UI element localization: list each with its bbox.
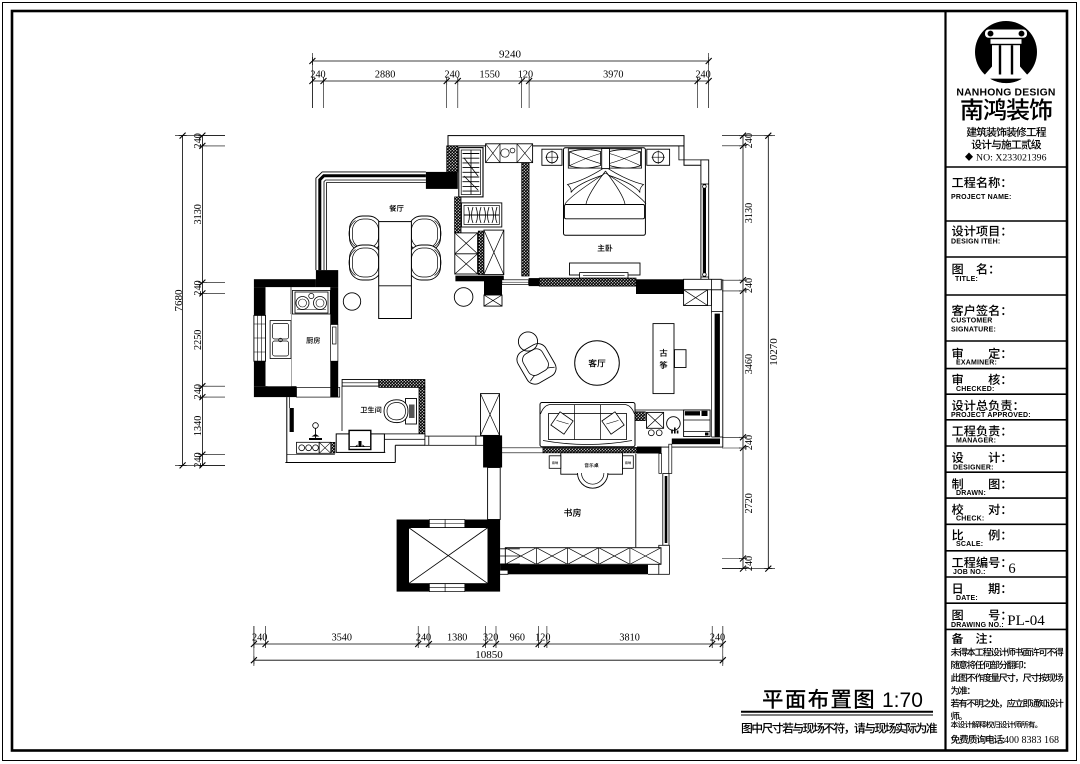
svg-text:240: 240 bbox=[744, 556, 755, 571]
svg-text:DESIGNER:: DESIGNER: bbox=[953, 465, 994, 472]
svg-text:NANHONG DESIGN: NANHONG DESIGN bbox=[956, 88, 1055, 99]
svg-text:SCALE:: SCALE: bbox=[956, 541, 983, 548]
svg-text:120: 120 bbox=[518, 70, 533, 81]
svg-text:240: 240 bbox=[695, 70, 710, 81]
svg-text:CHECK:: CHECK: bbox=[956, 516, 984, 523]
svg-text:3130: 3130 bbox=[744, 203, 755, 223]
svg-text:PROJECT NAME:: PROJECT NAME: bbox=[951, 194, 1012, 201]
svg-text:1550: 1550 bbox=[480, 70, 500, 81]
svg-text:960: 960 bbox=[510, 633, 525, 644]
svg-text:JOB NO.:: JOB NO.: bbox=[953, 569, 986, 576]
svg-text:2880: 2880 bbox=[375, 70, 395, 81]
svg-text:320: 320 bbox=[483, 633, 498, 644]
svg-text:10270: 10270 bbox=[768, 338, 780, 366]
svg-text:DATE:: DATE: bbox=[956, 595, 978, 602]
svg-text:240: 240 bbox=[744, 133, 755, 148]
svg-text:PL-04: PL-04 bbox=[1007, 613, 1045, 629]
svg-text:PROJECT APPROVED:: PROJECT APPROVED: bbox=[951, 412, 1031, 419]
svg-text:NO: X233021396: NO: X233021396 bbox=[976, 153, 1047, 164]
svg-text:9240: 9240 bbox=[499, 49, 522, 61]
svg-text:2720: 2720 bbox=[744, 493, 755, 513]
svg-text:400 8383 168: 400 8383 168 bbox=[1004, 735, 1059, 746]
svg-text:TITLE:: TITLE: bbox=[955, 276, 978, 283]
svg-text:3130: 3130 bbox=[193, 204, 204, 224]
svg-text:7680: 7680 bbox=[173, 289, 185, 312]
svg-text:240: 240 bbox=[193, 452, 204, 467]
svg-text:240: 240 bbox=[310, 70, 325, 81]
svg-text:DRAWING NO.:: DRAWING NO.: bbox=[951, 622, 1004, 629]
svg-text:6: 6 bbox=[1008, 561, 1015, 577]
svg-text:240: 240 bbox=[744, 435, 755, 450]
svg-text:SIGNATURE:: SIGNATURE: bbox=[951, 327, 996, 334]
svg-text:120: 120 bbox=[535, 633, 550, 644]
svg-text:2250: 2250 bbox=[193, 330, 204, 350]
svg-text:1:70: 1:70 bbox=[882, 689, 923, 712]
svg-text:240: 240 bbox=[252, 633, 267, 644]
svg-text:1340: 1340 bbox=[193, 416, 204, 436]
svg-text:DRAWN:: DRAWN: bbox=[956, 490, 986, 497]
svg-text:240: 240 bbox=[744, 278, 755, 293]
svg-text:10850: 10850 bbox=[475, 649, 503, 661]
svg-text:3810: 3810 bbox=[619, 633, 639, 644]
svg-text:240: 240 bbox=[193, 384, 204, 399]
svg-text:3970: 3970 bbox=[603, 70, 623, 81]
svg-text:EXAMINER:: EXAMINER: bbox=[956, 360, 997, 367]
svg-text:240: 240 bbox=[445, 70, 460, 81]
svg-text:240: 240 bbox=[193, 133, 204, 148]
svg-text:1380: 1380 bbox=[447, 633, 467, 644]
svg-text:240: 240 bbox=[193, 280, 204, 295]
svg-text:3460: 3460 bbox=[744, 354, 755, 374]
svg-text:DESIGN ITEH:: DESIGN ITEH: bbox=[951, 239, 1000, 246]
svg-text:240: 240 bbox=[416, 633, 431, 644]
svg-text:MANAGER:: MANAGER: bbox=[956, 438, 996, 445]
svg-text:3540: 3540 bbox=[332, 633, 352, 644]
svg-text:CHECKED:: CHECKED: bbox=[956, 386, 995, 393]
svg-text:CUSTOMER: CUSTOMER bbox=[951, 318, 993, 325]
svg-text:240: 240 bbox=[710, 633, 725, 644]
